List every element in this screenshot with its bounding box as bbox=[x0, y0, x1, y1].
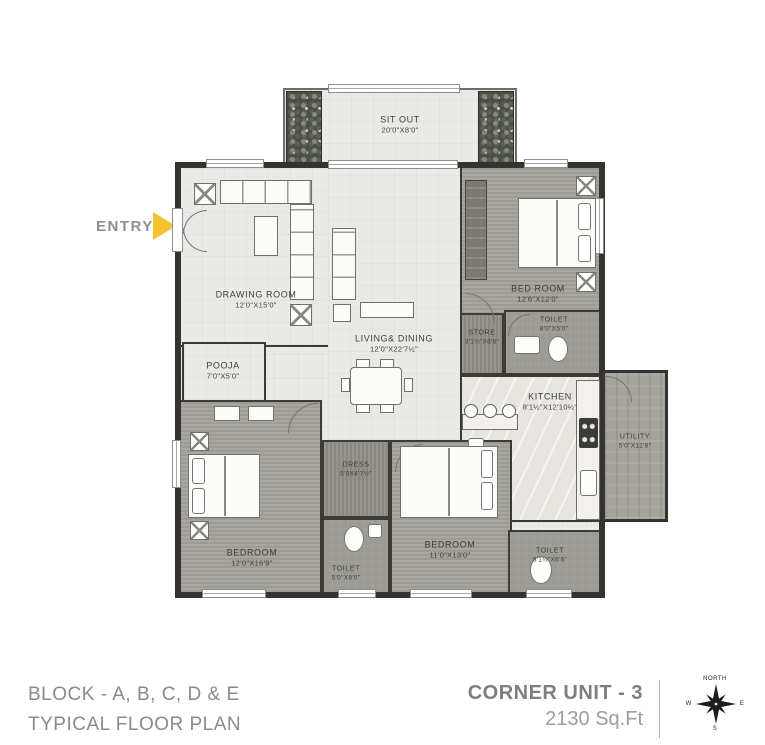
room-dim: 12'0"X16'9" bbox=[227, 559, 278, 568]
label-bedroom2: BEDROOM 12'0"X16'9" bbox=[227, 548, 278, 569]
window-toilet3-bottom bbox=[526, 589, 572, 598]
room-dress bbox=[322, 440, 390, 518]
nightstand bbox=[190, 521, 209, 540]
bed-divider bbox=[448, 448, 450, 516]
room-name: TOILET bbox=[332, 566, 361, 575]
compass-star-icon bbox=[694, 682, 738, 726]
nightstand bbox=[576, 272, 596, 292]
sliding-door-window bbox=[328, 160, 458, 169]
room-name: LIVING& DINING bbox=[355, 334, 433, 345]
room-name: BED ROOM bbox=[511, 284, 565, 295]
sink bbox=[514, 336, 540, 354]
room-dim: 3'1½"X6'6" bbox=[465, 338, 499, 346]
dresser bbox=[248, 406, 274, 421]
room-dim: 5'0X4'7½" bbox=[340, 470, 372, 478]
kitchen-counter bbox=[576, 380, 600, 520]
bed-divider bbox=[556, 200, 558, 266]
window-bedroom2-left bbox=[172, 440, 181, 488]
entry-label: ENTRY bbox=[96, 218, 154, 235]
pillow bbox=[578, 235, 591, 262]
dining-chair bbox=[380, 404, 394, 413]
pillow bbox=[481, 450, 493, 478]
room-dim: 8'0"X5'0" bbox=[540, 325, 569, 333]
label-pooja: POOJA 7'0"X5'0" bbox=[206, 361, 240, 382]
compass-south-label: S bbox=[676, 726, 754, 732]
stove bbox=[579, 418, 598, 448]
room-name: BEDROOM bbox=[425, 540, 476, 551]
console-table bbox=[360, 302, 414, 318]
floor-plan-page: ENTRY bbox=[0, 0, 765, 745]
compass-east-label: E bbox=[740, 701, 745, 707]
room-name: KITCHEN bbox=[523, 392, 578, 403]
window-drawing-top bbox=[206, 159, 264, 168]
toilet-wc bbox=[548, 336, 568, 362]
unit-title: CORNER UNIT - 3 bbox=[468, 682, 643, 705]
floor-plan: SIT OUT 20'0"X8'0" DRAWING ROOM 12'0"X15… bbox=[178, 88, 670, 600]
room-name: BEDROOM bbox=[227, 548, 278, 559]
label-utility: UTILITY 5'0"X12'6" bbox=[619, 434, 652, 451]
stool bbox=[502, 404, 516, 418]
room-name: SIT OUT bbox=[380, 115, 420, 126]
nightstand bbox=[190, 432, 209, 451]
window-bedroom3-bottom bbox=[410, 589, 472, 598]
room-name: POOJA bbox=[206, 361, 240, 372]
plan-title: TYPICAL FLOOR PLAN bbox=[28, 714, 241, 736]
toilet-wc bbox=[344, 526, 364, 552]
window-toilet2-bottom bbox=[338, 589, 376, 598]
compass-west-label: W bbox=[686, 701, 692, 707]
footer-divider bbox=[659, 680, 660, 738]
side-table bbox=[194, 183, 216, 205]
sofa-vertical bbox=[290, 204, 314, 300]
window-bedroom2-bottom bbox=[202, 589, 266, 598]
label-living: LIVING& DINING 12'0"X22'7½" bbox=[355, 334, 433, 355]
sitout-railing-window bbox=[328, 84, 460, 93]
coffee-table bbox=[254, 216, 278, 256]
label-bed1: BED ROOM 12'6"X12'0" bbox=[511, 284, 565, 305]
unit-area: 2130 Sq.Ft bbox=[545, 708, 643, 731]
room-dim: 12'0"X22'7½" bbox=[355, 345, 433, 354]
room-name: UTILITY bbox=[619, 434, 652, 443]
living-sofa bbox=[332, 228, 356, 300]
pillow bbox=[192, 458, 205, 484]
room-dim: 12'6"X12'0" bbox=[511, 295, 565, 304]
room-name: DRAWING ROOM bbox=[216, 290, 297, 301]
label-bedroom3: BEDROOM 11'0"X13'0" bbox=[425, 540, 476, 561]
room-dim: 5'0"X8'0" bbox=[332, 574, 361, 582]
room-dim: 11'0"X13'0" bbox=[425, 551, 476, 560]
window-bed1-right bbox=[595, 198, 604, 254]
dining-table bbox=[350, 367, 402, 405]
label-dress: DRESS 5'0X4'7½" bbox=[340, 462, 372, 479]
corner-table bbox=[333, 304, 351, 322]
room-dim: 20'0"X8'0" bbox=[380, 126, 420, 135]
room-dim: 7'0"X5'0" bbox=[206, 372, 240, 381]
room-name: TOILET bbox=[540, 317, 569, 326]
stool bbox=[483, 404, 497, 418]
compass-rose: NORTH W E bbox=[676, 676, 754, 742]
kitchen-sink bbox=[580, 470, 597, 496]
room-dim: 8'1½"X12'10½" bbox=[523, 403, 578, 412]
room-dim: 5'0"X12'6" bbox=[619, 442, 652, 450]
bed-divider bbox=[224, 456, 226, 516]
sofa-horizontal bbox=[220, 180, 312, 204]
dining-chair bbox=[341, 378, 350, 392]
stool bbox=[464, 404, 478, 418]
label-sit-out: SIT OUT 20'0"X8'0" bbox=[380, 115, 420, 136]
label-kitchen: KITCHEN 8'1½"X12'10½" bbox=[523, 392, 578, 413]
label-toilet3: TOILET 8'1½"X6'6" bbox=[533, 548, 567, 565]
room-dim: 8'1½"X6'6" bbox=[533, 556, 567, 564]
dresser bbox=[214, 406, 240, 421]
dining-chair bbox=[404, 378, 413, 392]
label-toilet1: TOILET 8'0"X5'0" bbox=[540, 317, 569, 334]
label-drawing: DRAWING ROOM 12'0"X15'0" bbox=[216, 290, 297, 311]
pillow bbox=[481, 482, 493, 510]
label-store: STORE 3'1½"X6'6" bbox=[465, 330, 499, 347]
room-name: DRESS bbox=[340, 462, 372, 471]
wardrobe bbox=[465, 180, 487, 280]
planter-right bbox=[478, 91, 514, 163]
pillow bbox=[578, 203, 591, 230]
room-name: STORE bbox=[465, 330, 499, 339]
block-title: BLOCK - A, B, C, D & E bbox=[28, 684, 240, 706]
entry-door-opening[interactable] bbox=[172, 208, 183, 252]
planter-left bbox=[286, 91, 322, 163]
room-dim: 12'0"X15'0" bbox=[216, 301, 297, 310]
window-bed1-top bbox=[524, 159, 568, 168]
pillow bbox=[192, 488, 205, 514]
label-toilet2: TOILET 5'0"X8'0" bbox=[332, 566, 361, 583]
sink bbox=[368, 524, 382, 538]
nightstand bbox=[576, 176, 596, 196]
dining-chair bbox=[356, 404, 370, 413]
room-name: TOILET bbox=[533, 548, 567, 557]
